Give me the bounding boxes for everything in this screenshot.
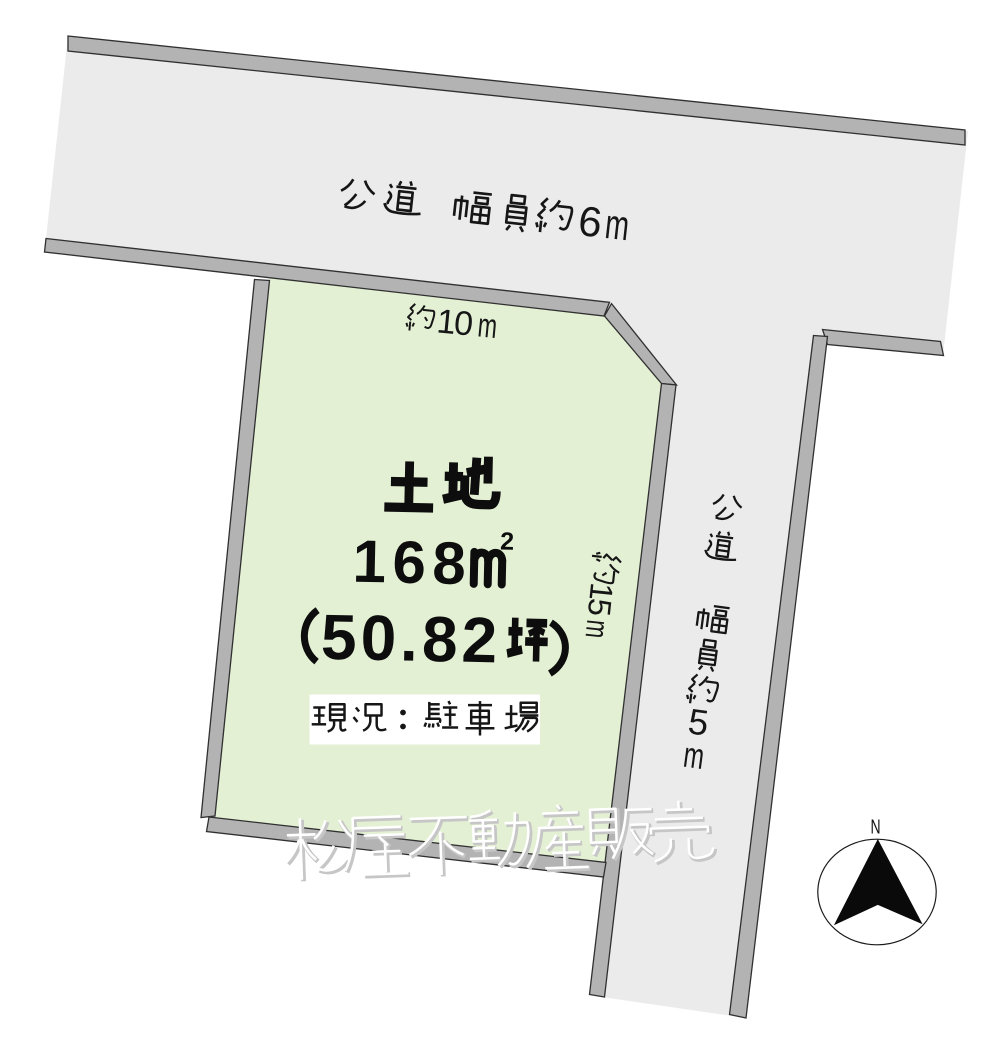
svg-text:m: m	[476, 307, 499, 346]
svg-text:N: N	[871, 815, 881, 838]
svg-text:m: m	[579, 618, 617, 640]
svg-text:2: 2	[500, 527, 514, 555]
svg-text:15: 15	[581, 581, 620, 617]
svg-text:168: 168	[352, 528, 473, 597]
svg-text:10: 10	[435, 302, 474, 343]
svg-text:50.82: 50.82	[320, 601, 502, 677]
